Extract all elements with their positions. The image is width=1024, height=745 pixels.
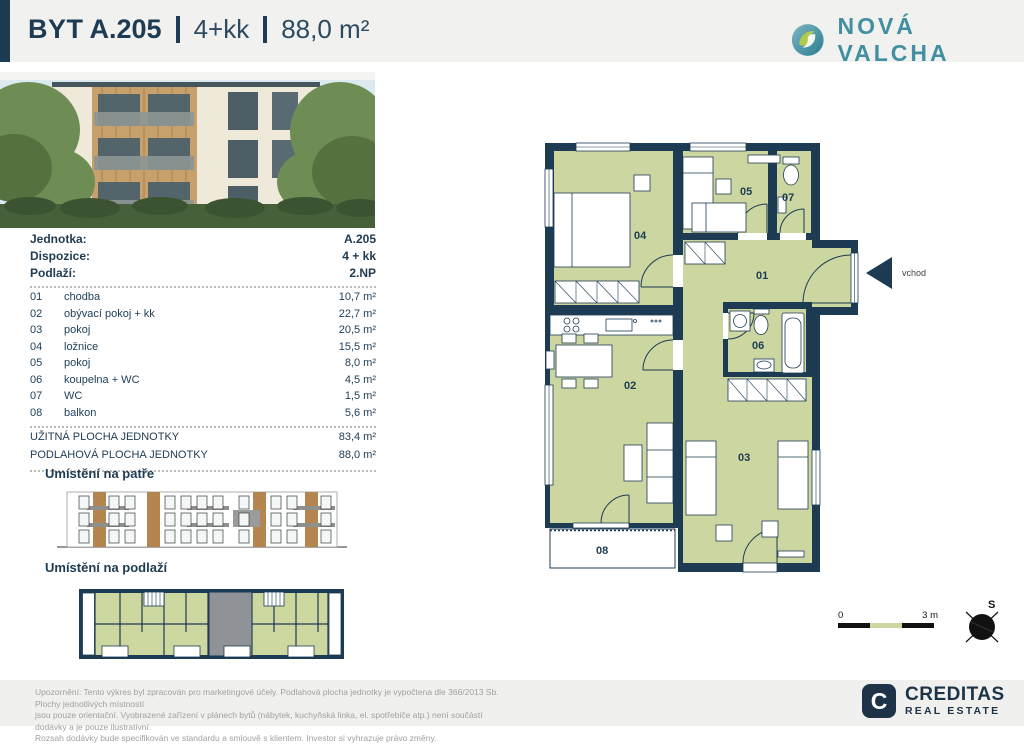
room-name: pokoj xyxy=(64,357,345,369)
room-area: 1,5 m² xyxy=(345,390,376,402)
info-row: Jednotka:A.205 xyxy=(30,232,376,249)
info-value: 2.NP xyxy=(349,266,376,280)
info-label: Jednotka: xyxy=(30,232,87,246)
room-area: 5,6 m² xyxy=(345,407,376,419)
plan-label-01: 01 xyxy=(756,270,768,282)
room-area: 22,7 m² xyxy=(339,308,376,320)
disclaimer-line: Rozsah dodávky bude specifikován ve stan… xyxy=(35,733,515,745)
nova-valcha-logo-text: NOVÁ VALCHA xyxy=(837,13,1024,67)
floor-level-diagram xyxy=(78,584,348,668)
info-value: A.205 xyxy=(344,232,376,246)
info-row: Dispozice:4 + kk xyxy=(30,249,376,266)
room-number: 06 xyxy=(30,374,64,386)
info-value: 4 + kk xyxy=(342,249,376,263)
room-row: 03pokoj20,5 m² xyxy=(30,324,376,341)
plan-label-03: 03 xyxy=(738,452,750,464)
page-title: BYTA.205 4+kk 88,0 m² xyxy=(28,14,369,45)
unit-number: A.205 xyxy=(90,14,162,44)
room-area: 20,5 m² xyxy=(339,324,376,336)
scale-bar: 0 3 m xyxy=(838,610,938,628)
building-photo xyxy=(0,72,375,228)
room-name: pokoj xyxy=(64,324,339,336)
info-row: Podlaží:2.NP xyxy=(30,266,376,283)
creditas-logo-subtext: REAL ESTATE xyxy=(905,706,1005,717)
room-number: 07 xyxy=(30,390,64,402)
header-accent-bar xyxy=(0,0,10,62)
nova-valcha-logo: NOVÁ VALCHA xyxy=(790,13,1024,67)
title-divider xyxy=(263,16,267,43)
disclaimer-line: jsou pouze orientační. Vyobrazené zaříze… xyxy=(35,710,515,733)
scale-end: 3 m xyxy=(922,610,938,621)
divider xyxy=(30,286,376,288)
room-row: 07WC1,5 m² xyxy=(30,390,376,407)
room-row: 02obývací pokoj + kk22,7 m² xyxy=(30,308,376,325)
total-row: UŽITNÁ PLOCHA JEDNOTKY83,4 m² xyxy=(30,431,376,449)
plan-label-06: 06 xyxy=(752,340,764,352)
creditas-logo: C CREDITAS REAL ESTATE xyxy=(862,684,1005,718)
level-location-title: Umístění na podlaží xyxy=(45,560,167,575)
unit-info-table: Jednotka:A.205 Dispozice:4 + kk Podlaží:… xyxy=(30,232,376,475)
room-number: 05 xyxy=(30,357,64,369)
balcony-outline xyxy=(550,529,675,568)
plan-label-05: 05 xyxy=(740,186,752,198)
divider xyxy=(30,426,376,428)
plan-label-02: 02 xyxy=(624,380,636,392)
unit-type-label: BYT xyxy=(28,14,84,44)
room-row: 08balkon5,6 m² xyxy=(30,407,376,424)
room-name: balkon xyxy=(64,407,345,419)
entrance-label: vchod xyxy=(902,268,926,278)
room-area: 15,5 m² xyxy=(339,341,376,353)
room-row: 04ložnice15,5 m² xyxy=(30,341,376,358)
plan-label-07: 07 xyxy=(782,192,794,204)
room-number: 04 xyxy=(30,341,64,353)
creditas-logo-text: CREDITAS xyxy=(905,685,1005,704)
info-label: Podlaží: xyxy=(30,266,76,280)
room-name: ložnice xyxy=(64,341,339,353)
title-divider xyxy=(176,16,180,43)
entrance-arrow-icon xyxy=(866,257,892,289)
disclaimer-line: Upozornění: Tento výkres byl zpracován p… xyxy=(35,687,515,710)
room-number: 03 xyxy=(30,324,64,336)
room-area: 10,7 m² xyxy=(339,291,376,303)
room-number: 02 xyxy=(30,308,64,320)
total-area: 88,0 m² xyxy=(339,449,376,461)
room-row: 01chodba10,7 m² xyxy=(30,291,376,308)
room-name: chodba xyxy=(64,291,339,303)
nova-valcha-logo-icon xyxy=(790,21,825,59)
plan-label-08: 08 xyxy=(596,545,608,557)
apartment-floor-plan: 01 02 03 04 05 06 07 08 vchod xyxy=(540,135,940,580)
compass-icon: S xyxy=(958,598,1006,648)
building-elevation-diagram xyxy=(57,486,347,552)
total-area: 83,4 m² xyxy=(339,431,376,443)
room-name: koupelna + WC xyxy=(64,374,345,386)
unit-layout: 4+kk xyxy=(194,14,250,45)
disclaimer-text: Upozornění: Tento výkres byl zpracován p… xyxy=(35,687,515,745)
room-area: 4,5 m² xyxy=(345,374,376,386)
room-name: obývací pokoj + kk xyxy=(64,308,339,320)
compass-north-label: S xyxy=(988,599,995,611)
scale-segments xyxy=(838,623,938,628)
room-row: 06koupelna + WC4,5 m² xyxy=(30,374,376,391)
plan-label-04: 04 xyxy=(634,230,647,242)
scale-start: 0 xyxy=(838,610,843,621)
room-row: 05pokoj8,0 m² xyxy=(30,357,376,374)
info-label: Dispozice: xyxy=(30,249,90,263)
total-label: PODLAHOVÁ PLOCHA JEDNOTKY xyxy=(30,449,208,461)
room-number: 08 xyxy=(30,407,64,419)
room-number: 01 xyxy=(30,291,64,303)
total-row: PODLAHOVÁ PLOCHA JEDNOTKY88,0 m² xyxy=(30,449,376,467)
room-area: 8,0 m² xyxy=(345,357,376,369)
creditas-logo-icon: C xyxy=(862,684,896,718)
floor-location-title: Umístění na patře xyxy=(45,466,154,481)
unit-area: 88,0 m² xyxy=(281,14,369,45)
total-label: UŽITNÁ PLOCHA JEDNOTKY xyxy=(30,431,179,443)
room-name: WC xyxy=(64,390,345,402)
